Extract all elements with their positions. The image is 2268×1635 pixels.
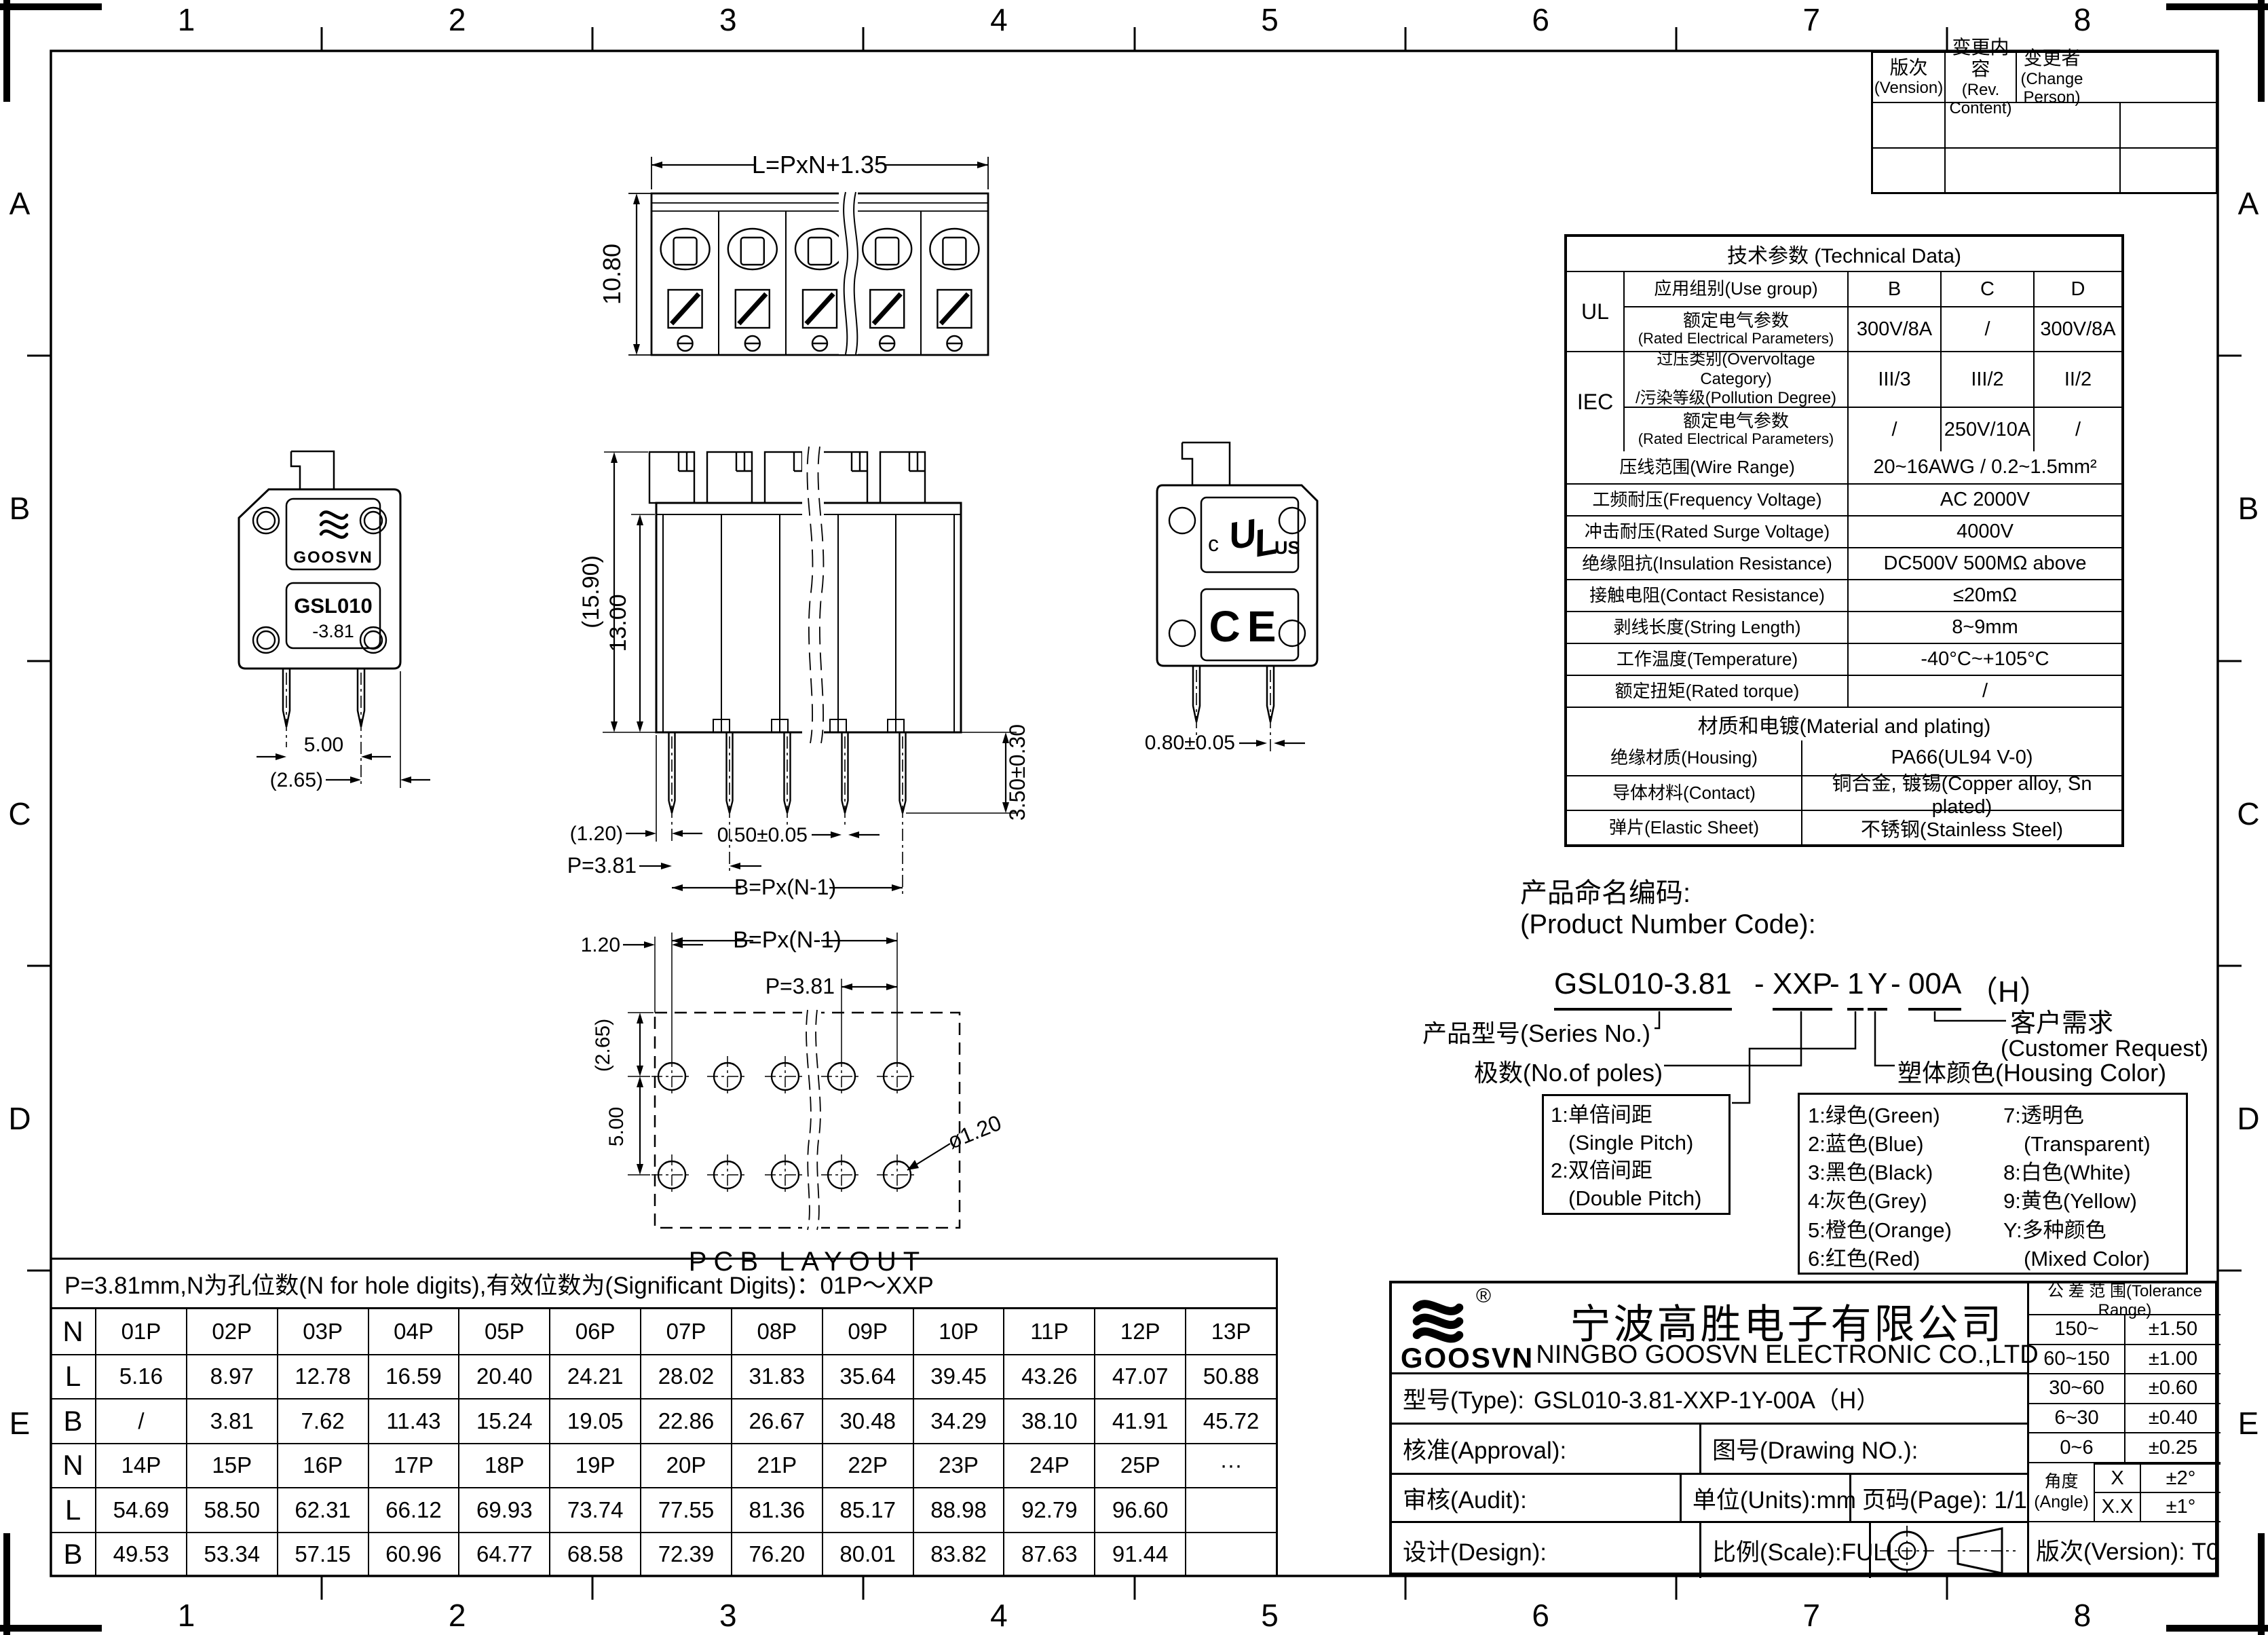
scale-field: 比例(Scale):FULL — [1699, 1523, 1869, 1578]
audit-field: 审核(Audit): — [1392, 1475, 1680, 1521]
color-option: 7:透明色 — [2003, 1102, 2183, 1130]
color-option: (Transparent) — [2003, 1130, 2183, 1159]
company-name-en: NINGBO GOOSVN ELECTRONIC CO.,LTD — [1551, 1340, 2023, 1370]
projection-symbol — [1869, 1523, 2027, 1578]
angle-precision: X — [2095, 1465, 2141, 1492]
angle-value: ±2° — [2141, 1465, 2220, 1492]
row-label: B — [51, 1533, 95, 1577]
pcb-row-offset-label: (2.65) — [592, 1019, 614, 1072]
tolerance-row: 6~30 ±0.40 — [2029, 1403, 2220, 1433]
color-option: 4:灰色(Grey) — [1808, 1187, 2003, 1216]
tolerance-value: ±0.40 — [2125, 1404, 2220, 1433]
dim-pin-width-label: 0.50±0.05 — [717, 824, 808, 846]
pole-dimension-table: P=3.81mm,N为孔位数(N for hole digits),有效位数为(… — [51, 1258, 1278, 1576]
dim-total-height-label: (15.90) — [578, 555, 604, 628]
tolerance-row: 0~6 ±0.25 — [2029, 1432, 2220, 1462]
version-field: 版次(Version): T0 — [2029, 1521, 2220, 1577]
dim-span-label: B=Px(N-1) — [734, 875, 836, 899]
plate-model-label: GSL010 — [294, 594, 372, 618]
angle-row: X.X ±1° — [2095, 1492, 2220, 1521]
front-elevation-view: L=PxN+1.35 — [597, 132, 1032, 377]
tolerance-value: ±0.25 — [2125, 1433, 2220, 1462]
design-field: 设计(Design): — [1392, 1523, 1699, 1578]
dimension-row: N 01P 02P 03P 04P 05P 06P 07P 08P 09P 10… — [51, 1309, 1276, 1354]
color-option: 9:黄色(Yellow) — [2003, 1187, 2183, 1216]
dimension-row: B / 3.81 7.62 11.43 15.24 19.05 22.86 26… — [51, 1398, 1276, 1443]
side-view-logo: GOOSVN GSL010 -3.81 5.00 (2.65) — [224, 445, 441, 804]
color-options-box: 1:绿色(Green)2:蓝色(Blue)3:黑色(Black)4:灰色(Gre… — [1798, 1093, 2188, 1275]
ul-logo: U L — [1225, 508, 1281, 569]
title-block: ® GOOSVN 宁波高胜电子有限公司 NINGBO GOOSVN ELECTR… — [1389, 1281, 2218, 1575]
pcb-span-label: B=Px(N-1) — [733, 927, 842, 953]
pitch-options-box: 1:单倍间距(Single Pitch)2:双倍间距(Double Pitch) — [1542, 1094, 1731, 1215]
dim-pin-thickness-label: 0.80±0.05 — [1145, 732, 1235, 754]
dim-end-wall-label: (1.20) — [570, 823, 623, 845]
tolerance-range: 30~60 — [2029, 1374, 2125, 1403]
row-label: L — [51, 1488, 95, 1532]
pitch-option: 2:双倍间距 — [1551, 1157, 1724, 1185]
drawing-no-field: 图号(Drawing NO.): — [1699, 1425, 2027, 1473]
dim-pitch-label: P=3.81 — [567, 853, 637, 878]
angle-precision: X.X — [2095, 1493, 2141, 1521]
angle-value: ±1° — [2141, 1493, 2220, 1521]
plate-pitch-label: -3.81 — [312, 621, 354, 641]
page-field: 页码(Page): 1/1 — [1849, 1475, 2027, 1521]
dim-pin-span-label: 5.00 — [304, 734, 343, 756]
pcb-hole-dia-label: ø1.20 — [944, 1110, 1004, 1154]
row-label: B — [51, 1399, 95, 1443]
tolerance-value: ±1.00 — [2125, 1345, 2220, 1374]
tolerance-value: ±1.50 — [2125, 1315, 2220, 1344]
dim-body-height-label: 13.00 — [605, 594, 631, 652]
pcb-pitch-label: P=3.81 — [766, 974, 835, 998]
tolerance-row: 30~60 ±0.60 — [2029, 1373, 2220, 1403]
approval-field: 核准(Approval): — [1392, 1425, 1699, 1473]
pitch-option: 1:单倍间距 — [1551, 1102, 1724, 1129]
angle-row: X ±2° — [2095, 1463, 2220, 1492]
tolerance-row: 60~150 ±1.00 — [2029, 1344, 2220, 1374]
color-option: 3:黑色(Black) — [1808, 1159, 2003, 1187]
pcb-row-spacing-label: 5.00 — [605, 1107, 628, 1146]
tolerance-range: 60~150 — [2029, 1345, 2125, 1374]
ul-us-mark: US — [1274, 538, 1300, 558]
row-label: N — [51, 1444, 95, 1488]
ul-c-mark: c — [1208, 531, 1219, 556]
tolerance-range: 6~30 — [2029, 1404, 2125, 1433]
color-option: (Mixed Color) — [2003, 1245, 2183, 1273]
brand-name: GOOSVN — [1393, 1342, 1541, 1374]
tolerance-range: 150~ — [2029, 1315, 2125, 1344]
color-option: 6:红色(Red) — [1808, 1245, 2003, 1273]
pitch-option: (Single Pitch) — [1551, 1129, 1724, 1157]
dimension-row: N 14P 15P 16P 17P 18P 19P 20P 21P 22P 23… — [51, 1443, 1276, 1488]
type-label: 型号(Type): — [1403, 1381, 1524, 1416]
dim-height-label: 10.80 — [598, 244, 626, 305]
color-option: 2:蓝色(Blue) — [1808, 1130, 2003, 1159]
dim-length-label: L=PxN+1.35 — [752, 151, 888, 178]
pcb-layout-view: B=Px(N-1) P=3.81 1.20 (2.65) 5.00 ø1.20 … — [570, 903, 1038, 1290]
type-row: 型号(Type): GSL010-3.81-XXP-1Y-00A（H） — [1392, 1374, 2027, 1423]
angle-label: 角度 (Angle) — [2029, 1463, 2095, 1521]
dimension-row: L 5.16 8.97 12.78 16.59 20.40 24.21 28.0… — [51, 1354, 1276, 1399]
pcb-caption: PCB LAYOUT — [689, 1247, 926, 1277]
angle-tolerance: 角度 (Angle) X ±2° X.X ±1° — [2029, 1462, 2220, 1521]
dimension-row: L 54.69 58.50 62.31 66.12 69.93 73.74 77… — [51, 1487, 1276, 1532]
dim-edge-label: (2.65) — [270, 769, 323, 791]
registered-mark: ® — [1476, 1285, 1491, 1308]
dim-pin-length-label: 3.50±0.30 — [1005, 724, 1029, 821]
tolerance-table: 公 差 范 围(Tolerance Range) 150~ ±1.50 60~1… — [2027, 1283, 2220, 1573]
angle-en: (Angle) — [2034, 1492, 2089, 1512]
tolerance-range: 0~6 — [2029, 1433, 2125, 1462]
dimension-row: B 49.53 53.34 57.15 60.96 64.77 68.58 72… — [51, 1532, 1276, 1577]
plate-brand-label: GOOSVN — [293, 548, 373, 567]
pitch-option: (Double Pitch) — [1551, 1185, 1724, 1213]
engineering-drawing-sheet: 12345678 12345678 ABCDE ABCDE 版次 (Vensio… — [0, 0, 2268, 1635]
angle-cn: 角度 — [2044, 1471, 2078, 1492]
tolerance-title: 公 差 范 围(Tolerance Range) — [2029, 1283, 2220, 1314]
tolerance-value: ±0.60 — [2125, 1374, 2220, 1403]
pcb-offset-label: 1.20 — [581, 934, 620, 956]
color-option: 1:绿色(Green) — [1808, 1102, 2003, 1130]
color-option: 5:橙色(Orange) — [1808, 1216, 2003, 1245]
type-value: GSL010-3.81-XXP-1Y-00A（H） — [1534, 1381, 1880, 1416]
side-view-certifications: c U L US CE 0.80±0.05 — [1140, 434, 1364, 794]
color-option: 8:白色(White) — [2003, 1159, 2183, 1187]
tolerance-row: 150~ ±1.50 — [2029, 1314, 2220, 1344]
row-label: L — [51, 1355, 95, 1399]
units-field: 单位(Units):mm — [1680, 1475, 1849, 1521]
ce-mark: CE — [1209, 602, 1283, 651]
color-option: Y:多种颜色 — [2003, 1216, 2183, 1245]
row-label: N — [51, 1309, 95, 1354]
pin-side-elevation-view: (15.90) 13.00 3.50±0.30 (1.20) 0.50±0.05… — [563, 434, 1038, 909]
